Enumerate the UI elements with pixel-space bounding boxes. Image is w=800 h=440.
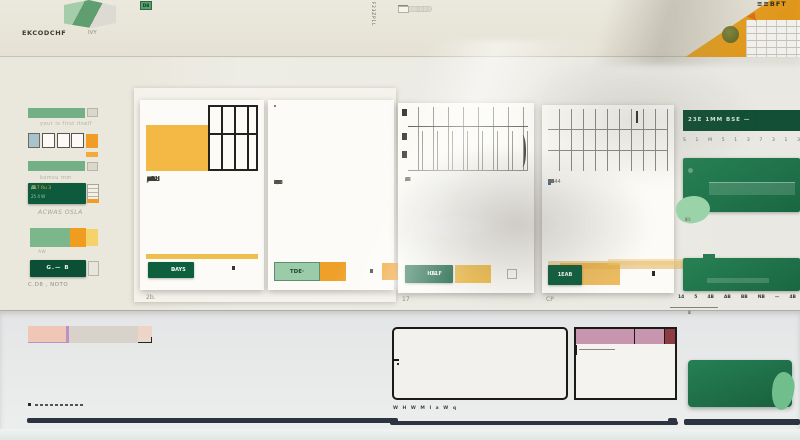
totals-cell: BB <box>741 295 748 300</box>
sidebar-bar-1[interactable] <box>28 108 85 118</box>
stacked-bar-caption: AW <box>38 250 46 255</box>
window-grid <box>208 105 258 171</box>
logo-text: EKCODCHF <box>22 29 66 37</box>
glass-stripe <box>274 105 276 107</box>
weekday-label: M <box>708 138 712 143</box>
dot-marker <box>370 269 373 273</box>
orange-square <box>382 263 399 280</box>
weekday-label: 1 <box>696 138 699 143</box>
amber-wash <box>146 125 212 171</box>
weekday-label: 3 <box>772 138 775 143</box>
divider-line <box>670 307 718 308</box>
totals-cell: AB <box>724 295 731 300</box>
amber-tab <box>455 265 491 283</box>
panel-line-2: 25 4 W <box>31 194 45 199</box>
paper-stack-accent <box>87 199 99 203</box>
weekday-label: S <box>683 138 686 143</box>
sidebar-button-handle[interactable] <box>88 261 99 276</box>
banner-inner-field <box>709 182 795 195</box>
thumbnail-blue[interactable] <box>28 133 40 148</box>
card2-footer: TDE· <box>274 262 388 282</box>
thumbnail-3[interactable] <box>71 133 84 148</box>
card3-footer: HALF 12 <box>405 263 527 283</box>
dot-marker <box>652 271 655 276</box>
navy-bar-center <box>390 421 678 425</box>
navy-bar-right <box>684 419 800 425</box>
navy-bar-left <box>27 418 398 423</box>
schedule-band-1 <box>408 107 528 127</box>
pink-table-header <box>576 329 675 344</box>
date-chip[interactable]: D8 <box>140 1 152 10</box>
card4-button[interactable]: 1EAB <box>548 265 582 285</box>
sidebar-green-panel[interactable]: 117 Ru 3 /B 25 4 W <box>28 183 86 204</box>
dot-marker <box>232 266 235 270</box>
legend-dot-dash <box>28 403 88 407</box>
mini-calendar-cell: 4 <box>685 218 688 223</box>
table-cell <box>576 345 587 355</box>
sidebar-bar-2-handle[interactable] <box>87 162 98 171</box>
banner-tab <box>703 254 715 260</box>
stacked-bar-green[interactable] <box>30 228 70 247</box>
mini-calendar-cell: 1 <box>688 311 691 316</box>
weekday-label: 1 <box>785 138 788 143</box>
banner-dot-icon <box>688 168 693 173</box>
sidebar-green-button[interactable]: G.— B <box>30 260 86 277</box>
pink-header-cell <box>634 329 664 344</box>
outline-box <box>507 269 517 279</box>
thumbnail-1[interactable] <box>42 133 55 148</box>
totals-cell: — <box>775 295 780 300</box>
totals-cell: NB <box>758 295 765 300</box>
totals-row: 1454BABBBNB—4B <box>678 295 796 300</box>
card1-caption: 2b. <box>146 294 156 301</box>
orange-tab <box>320 262 346 281</box>
calendar-card-4[interactable]: 112521115·13BB24B2B101313AB2242dHO1232O4… <box>542 105 674 293</box>
totals-cell: 4B <box>789 295 796 300</box>
bottom-edge-strip <box>0 429 800 440</box>
pink-table-body <box>576 344 675 398</box>
toolbar-item-icon[interactable] <box>398 6 409 13</box>
sidebar-script-caption: ACWAS OSLA <box>38 209 83 216</box>
left-mark <box>402 151 407 158</box>
legend-dot <box>28 403 31 406</box>
navy-bar-stub <box>668 418 677 423</box>
card2-artwork <box>274 105 388 177</box>
right-panel-header: 23E 1MM BSE — <box>683 110 800 131</box>
weekday-label: 3 <box>747 138 750 143</box>
totals-cell: 5 <box>694 295 697 300</box>
card3-button[interactable]: HALF 12 <box>405 265 453 283</box>
pink-header-cell <box>576 329 634 344</box>
orange-header-table <box>392 327 568 400</box>
mini-spreadsheet-card <box>746 20 800 57</box>
thumbnail-orange[interactable] <box>86 134 98 148</box>
stacked-bar-orange[interactable] <box>70 228 86 247</box>
legend-dash-line <box>35 404 83 406</box>
calendar-cell: 1644 <box>548 179 561 185</box>
totals-cell: 4B <box>707 295 714 300</box>
thumbnail-2[interactable] <box>57 133 70 148</box>
table-row <box>396 359 399 373</box>
vertical-label: F23ZP1L <box>371 2 376 46</box>
card4-caption: CP <box>546 296 554 303</box>
card1-artwork <box>146 105 258 171</box>
weekday-label: 5 <box>722 138 725 143</box>
corner-title: ≡≡BFT <box>757 0 787 8</box>
pink-header-table <box>574 327 677 400</box>
schedule-band-2 <box>408 131 528 171</box>
calendar-card-3[interactable]: LIIES1LIS–·BNBN·BAA/B··NHN·N·BAA/B··MMB·… <box>398 103 534 293</box>
weekday-row: S1M5137313 <box>683 138 800 143</box>
card2-button[interactable]: TDE· <box>274 262 320 281</box>
banner-inner-line <box>707 278 769 283</box>
pink-header-cell <box>664 329 675 344</box>
template-collage: EKCODCHF IVY 18B6F4D6N8D3O308L398093b5W9… <box>0 0 800 440</box>
card1-button[interactable]: DAYS ≡ <box>148 262 194 278</box>
orange-table-caption: W H W M I a W q <box>393 406 458 411</box>
green-banner-2[interactable] <box>683 258 800 291</box>
card1-footer: DAYS ≡ <box>146 254 258 280</box>
sidebar-bar-2[interactable] <box>28 161 85 171</box>
calendar-cell: 4 <box>147 176 151 183</box>
left-mark <box>402 109 407 116</box>
card3-caption: 17 <box>402 296 410 303</box>
totals-cell: 14 <box>678 295 684 300</box>
weekday-label: 1 <box>734 138 737 143</box>
grid-tick <box>636 111 638 123</box>
calendar-cell: · <box>405 177 407 183</box>
orange-table-body <box>394 359 566 398</box>
mosaic-cell <box>28 326 48 342</box>
calendar-card-2[interactable]: 21515.85K5XBX31d1d3e31/72e3O245DD–1dA534… <box>268 100 394 290</box>
widget-columns <box>694 372 774 402</box>
calendar-card-1[interactable]: J81322X332i1Cd9.2222–34412bC34–A44413d9b… <box>140 100 264 290</box>
orange-mini-bar <box>86 152 98 157</box>
sidebar-caption-2: komsu mm <box>40 175 72 181</box>
card4-artwork <box>548 109 668 171</box>
sidebar-button-caption: C.D8 , NOTO <box>28 282 68 288</box>
amber-strip <box>146 254 258 259</box>
card3-artwork <box>404 107 528 171</box>
sidebar-bar-1-handle[interactable] <box>87 108 98 117</box>
weekday-label: 7 <box>759 138 762 143</box>
logo-subtext: IVY <box>88 30 97 36</box>
sidebar-caption-1: your is first itself <box>40 121 92 127</box>
left-mark <box>402 133 407 140</box>
ruler-hole-icon <box>722 26 739 43</box>
orange-table-header <box>394 329 566 359</box>
stacked-bar-yellow[interactable] <box>86 229 98 246</box>
calendar-cell: · <box>274 180 276 186</box>
bracket-glyph <box>519 135 526 167</box>
